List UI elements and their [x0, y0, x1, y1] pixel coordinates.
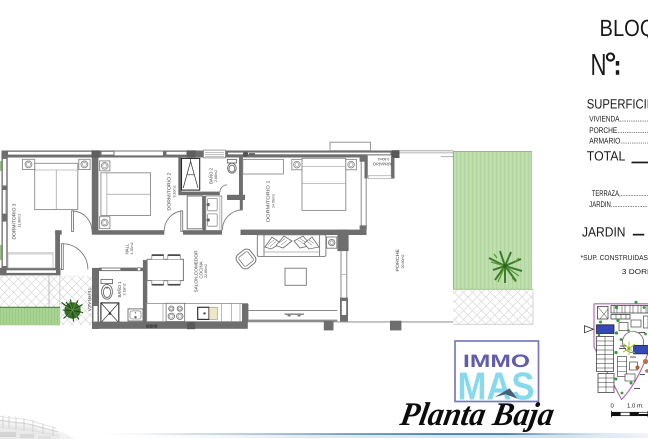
- svg-text:20.80m2: 20.80m2: [401, 255, 405, 269]
- svg-text:9.10m2: 9.10m2: [173, 186, 177, 198]
- svg-text:2.88m2: 2.88m2: [214, 170, 218, 182]
- svg-text:SUPERFICIES: SUPERFICIES: [587, 97, 648, 112]
- svg-text:DORMITORIO 1: DORMITORIO 1: [266, 180, 271, 222]
- svg-text:14.95m2: 14.95m2: [272, 194, 276, 208]
- svg-text:BAÑO 1: BAÑO 1: [117, 281, 122, 298]
- svg-text:BAÑO 2: BAÑO 2: [209, 167, 214, 184]
- svg-text:JARDIN: JARDIN: [582, 225, 626, 240]
- svg-text:PORCHE: PORCHE: [395, 249, 400, 272]
- svg-text:4.35m2: 4.35m2: [130, 243, 134, 255]
- svg-text:22.86m2: 22.86m2: [204, 264, 208, 278]
- svg-text:N: N: [591, 48, 607, 82]
- svg-text:Planta Baja: Planta Baja: [397, 397, 557, 433]
- svg-text:HALL: HALL: [125, 243, 130, 255]
- svg-text:1.0 m.: 1.0 m.: [627, 403, 644, 410]
- svg-text:ARMARIO: ARMARIO: [372, 162, 392, 167]
- svg-text:TERRAZA: TERRAZA: [87, 288, 92, 313]
- svg-text:11.90m2: 11.90m2: [18, 214, 22, 228]
- svg-text:DORMITORIO 2: DORMITORIO 2: [167, 172, 172, 210]
- svg-text:DORMITORIO 3: DORMITORIO 3: [12, 203, 17, 239]
- svg-text:0.80m2: 0.80m2: [378, 157, 390, 161]
- svg-text:ARMARIO.....................: ARMARIO.....................: [589, 136, 648, 145]
- svg-text:TOTAL: TOTAL: [587, 148, 626, 163]
- svg-text:COCINA: COCINA: [198, 261, 203, 278]
- svg-text:3.18m2: 3.18m2: [123, 284, 127, 296]
- svg-text:*SUP. CONSTRUIDAS: *SUP. CONSTRUIDAS: [581, 254, 648, 262]
- svg-text:VIVIENDA......................: VIVIENDA......................: [589, 114, 648, 123]
- svg-text:BLOQUE: BLOQUE: [600, 15, 648, 41]
- svg-text:TERRAZA,..................: TERRAZA,..................: [592, 189, 648, 198]
- svg-text:JARDIN.......................: JARDIN.......................: [589, 200, 648, 209]
- svg-text:PORCHE.......................: PORCHE.......................: [589, 126, 648, 135]
- svg-text:3 DORMITORIOS: 3 DORMITORIOS: [622, 268, 648, 276]
